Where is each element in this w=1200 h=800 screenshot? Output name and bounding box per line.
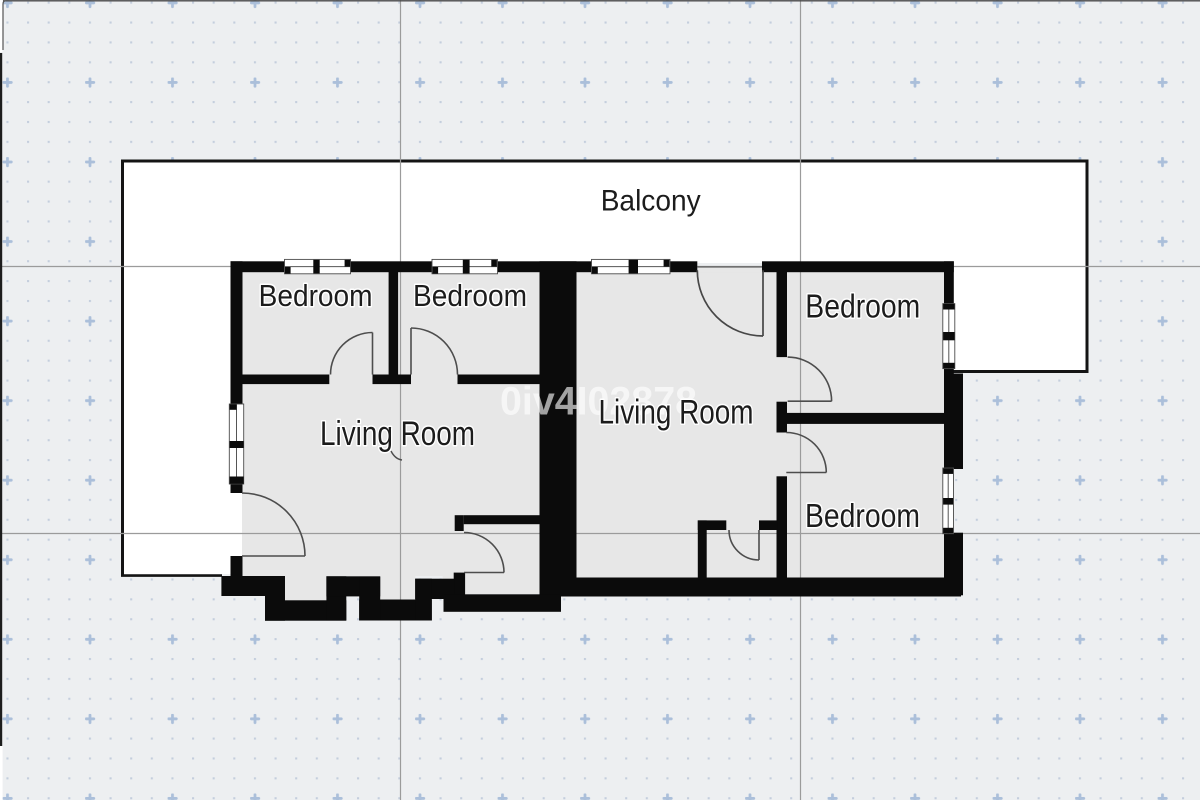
svg-text:Bedroom: Bedroom xyxy=(805,497,920,534)
svg-text:Balcony: Balcony xyxy=(601,185,701,218)
svg-text:Bedroom: Bedroom xyxy=(259,278,373,313)
svg-text:Living Room: Living Room xyxy=(320,415,475,453)
svg-text:Living Room: Living Room xyxy=(599,394,754,432)
svg-text:Bedroom: Bedroom xyxy=(805,288,920,325)
svg-text:Bedroom: Bedroom xyxy=(413,278,527,313)
